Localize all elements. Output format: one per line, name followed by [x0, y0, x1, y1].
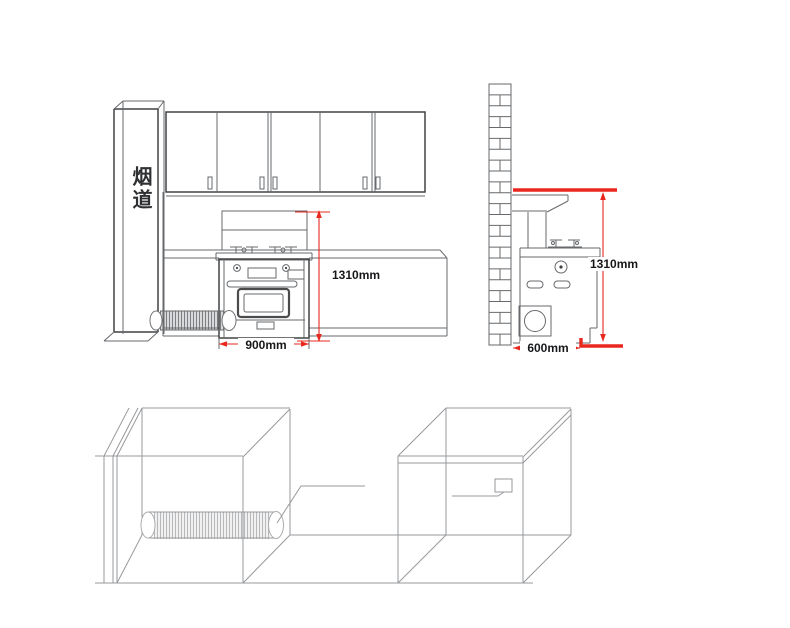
exhaust-duct-iso	[141, 512, 284, 539]
front-width-dimension-label: 900mm	[238, 338, 294, 352]
brick-wall	[489, 84, 511, 345]
isometric-duct-view	[95, 408, 571, 583]
base-cabinets	[163, 192, 447, 336]
front-elevation-view	[104, 101, 447, 349]
fan-outlet	[525, 311, 546, 332]
countertop-side	[520, 248, 600, 257]
socket-leader-line	[452, 492, 504, 496]
wall-cabinets	[166, 112, 425, 196]
cabinet-door-handles	[208, 177, 380, 189]
side-height-dimension-label: 1310mm	[588, 257, 640, 271]
side-section-view	[489, 84, 623, 351]
cabinet-wireframe-left	[95, 408, 290, 583]
burner-side	[548, 240, 582, 247]
side-depth-dimension-label: 600mm	[520, 341, 576, 355]
stove-bottom-vent	[257, 322, 274, 329]
stove-body-side	[513, 257, 597, 343]
stove-side-profile	[512, 195, 600, 343]
flue-duct-column	[104, 101, 164, 341]
oven-handle	[227, 281, 297, 287]
front-height-dimension-label: 1310mm	[332, 269, 380, 281]
power-socket-outline	[495, 479, 512, 492]
stove-control-panel	[234, 265, 304, 279]
oven-window	[238, 289, 289, 317]
diagram-linework	[0, 0, 790, 628]
flue-duct-label: 烟道	[126, 163, 150, 215]
floor-step-line	[581, 338, 623, 346]
installation-diagram: 烟道 1310mm 900mm 1310mm 600mm	[0, 0, 790, 628]
